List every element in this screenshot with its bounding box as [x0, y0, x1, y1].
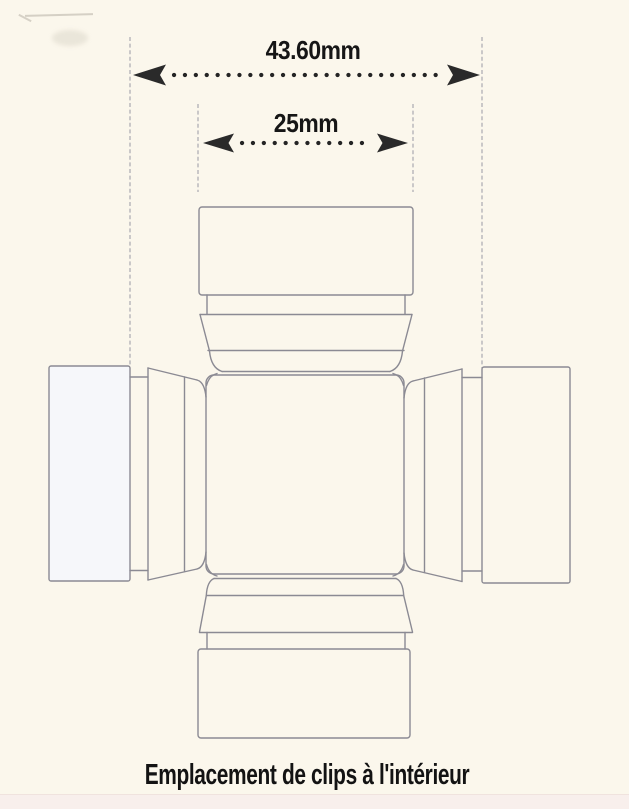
center-body	[206, 374, 404, 577]
bottom-cap-right-side	[396, 579, 413, 633]
dimension-label-inner: 25mm	[274, 110, 338, 136]
top-bearing-assembly	[199, 207, 413, 372]
bottom-bearing-cup	[198, 649, 410, 738]
arrowhead-right-icon	[447, 65, 480, 86]
right-cap-bottom-edge	[413, 570, 462, 582]
caption-text: Emplacement de clips à l'intérieur	[145, 761, 470, 790]
dimension-arrow-outer	[133, 65, 480, 86]
scanned-diagram-page: 43.60mm 25mm Emplacement de clips à l'in…	[0, 0, 629, 809]
dimension-label-outer: 43.60mm	[266, 37, 361, 63]
arrowhead-left-icon	[203, 134, 234, 153]
bottom-bearing-assembly	[198, 579, 413, 739]
scan-footer-band	[0, 794, 629, 809]
left-cap-top-edge	[148, 368, 197, 380]
right-bearing-cup	[482, 367, 570, 583]
left-cap-bottom-edge	[148, 569, 197, 580]
top-cap-right-side	[390, 315, 412, 372]
right-fillet-bottom	[404, 553, 413, 570]
bottom-cap-left-side	[200, 579, 215, 633]
top-bearing-cup	[199, 207, 413, 295]
left-fillet-bottom	[197, 552, 206, 569]
center-body-square	[206, 375, 404, 574]
extension-lines	[130, 37, 482, 368]
arrowhead-left-icon	[133, 65, 166, 86]
left-bearing-assembly	[49, 366, 206, 581]
left-bearing-cup	[49, 366, 130, 581]
left-fillet-top	[197, 380, 206, 397]
right-fillet-top	[404, 381, 413, 398]
right-cap-top-edge	[413, 369, 462, 381]
arrowhead-right-icon	[377, 134, 408, 153]
right-bearing-assembly	[404, 367, 570, 583]
top-cap-left-side	[200, 315, 222, 372]
